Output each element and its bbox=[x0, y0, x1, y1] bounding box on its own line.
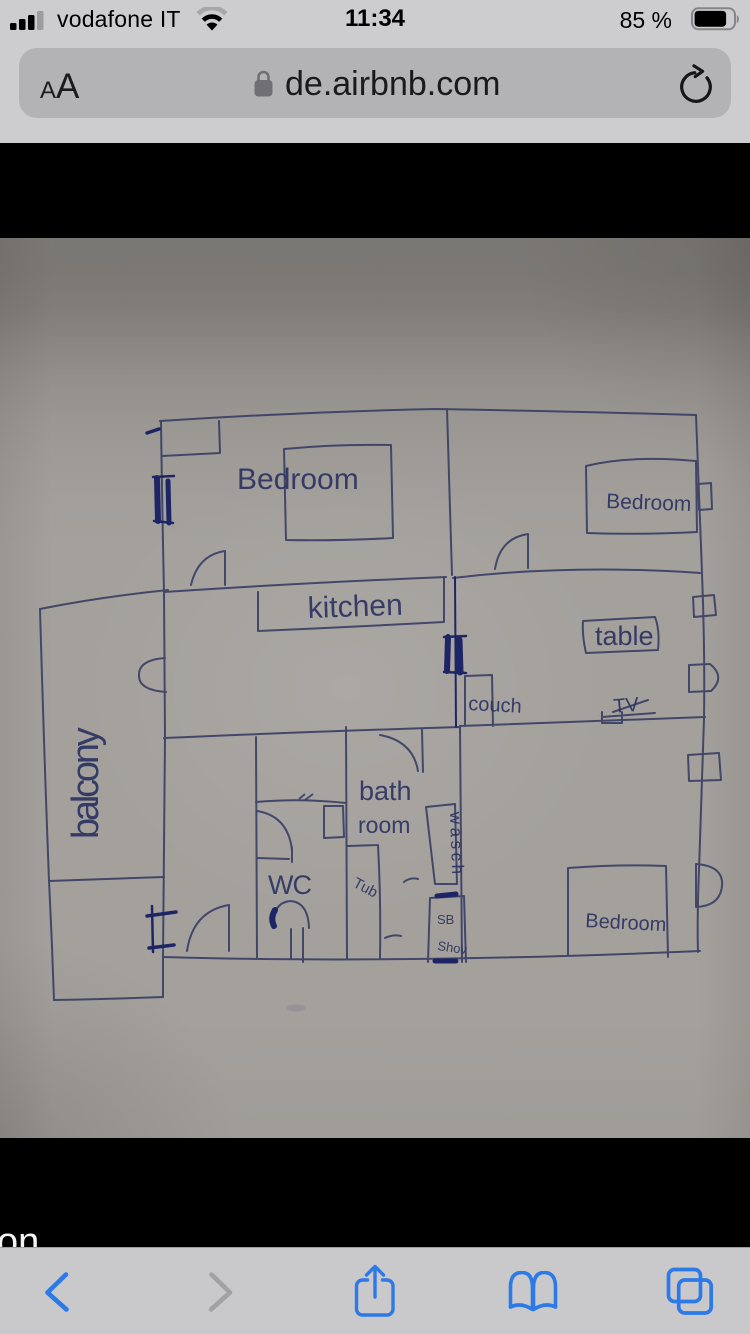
svg-text:kitchen: kitchen bbox=[307, 589, 403, 625]
svg-text:Tub: Tub bbox=[350, 875, 380, 902]
svg-text:Bedroom: Bedroom bbox=[606, 490, 692, 516]
svg-text:wasch: wasch bbox=[446, 810, 467, 877]
svg-text:SB: SB bbox=[437, 912, 454, 927]
svg-text:WC: WC bbox=[268, 870, 311, 900]
svg-text:TV: TV bbox=[613, 694, 641, 718]
svg-text:table: table bbox=[595, 621, 654, 651]
svg-text:couch: couch bbox=[468, 693, 522, 718]
svg-text:room: room bbox=[358, 812, 410, 838]
svg-text:balcony: balcony bbox=[65, 727, 107, 839]
svg-text:Bedroom: Bedroom bbox=[585, 910, 667, 936]
svg-text:Bedroom: Bedroom bbox=[237, 463, 359, 496]
svg-text:Shov: Shov bbox=[437, 938, 469, 957]
svg-text:bath: bath bbox=[359, 776, 412, 806]
